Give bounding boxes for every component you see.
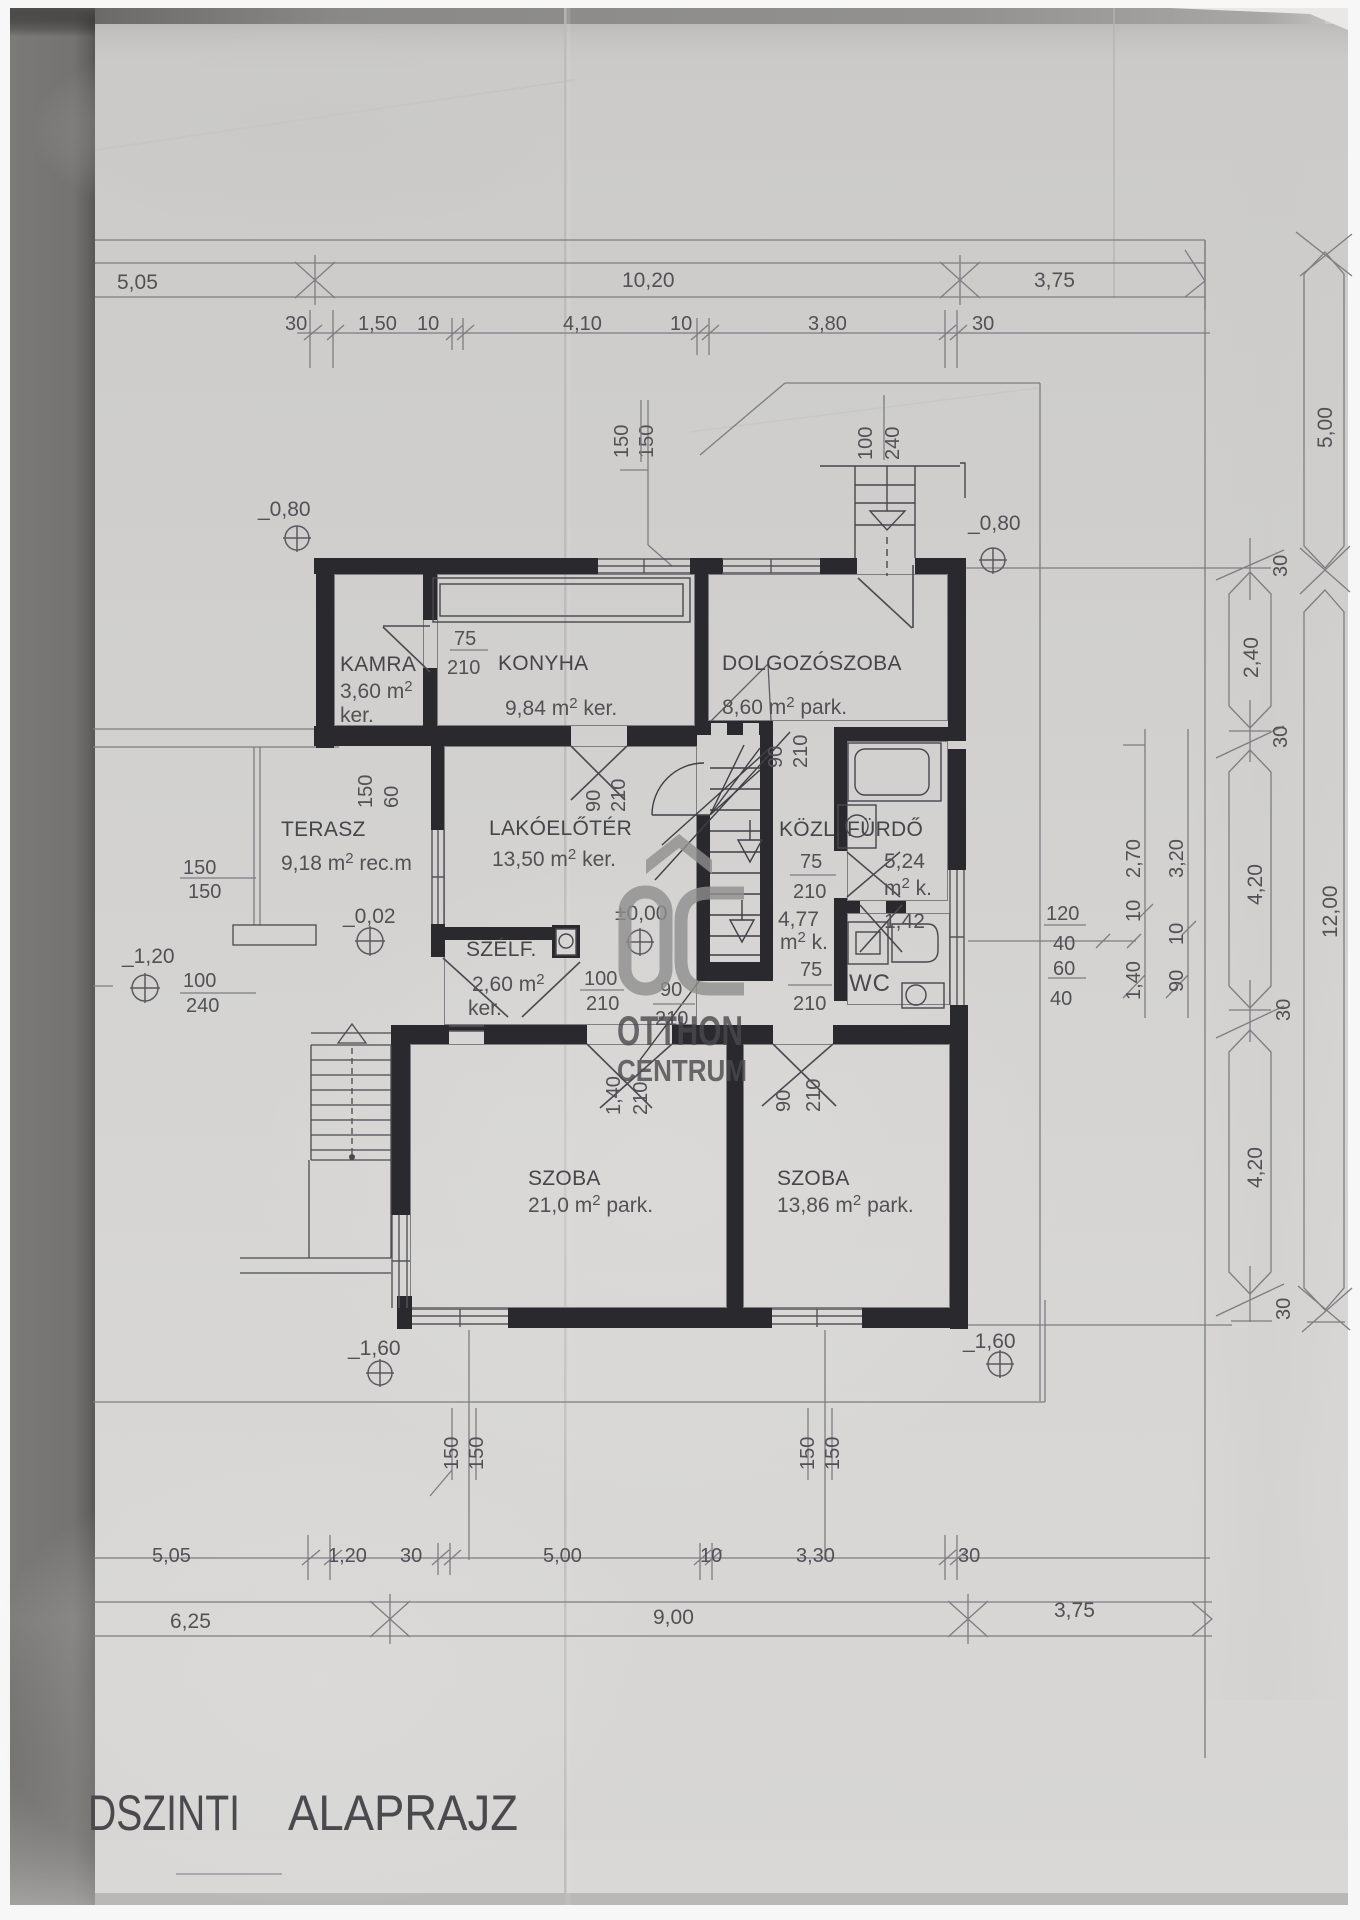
svg-text:30: 30 xyxy=(1270,555,1292,577)
svg-text:60: 60 xyxy=(1053,958,1075,980)
svg-text:30: 30 xyxy=(1273,1298,1295,1320)
svg-text:40: 40 xyxy=(1053,933,1075,955)
svg-text:13,50 m2 ker.: 13,50 m2 ker. xyxy=(492,846,616,871)
svg-text:75: 75 xyxy=(454,628,476,650)
svg-text:150: 150 xyxy=(441,1437,463,1470)
svg-text:KÖZL.: KÖZL. xyxy=(779,818,841,841)
svg-text:90: 90 xyxy=(583,790,605,812)
svg-text:210: 210 xyxy=(608,779,630,812)
svg-text:2,40: 2,40 xyxy=(1240,637,1263,678)
svg-text:150: 150 xyxy=(466,1437,488,1470)
svg-text:5,00: 5,00 xyxy=(543,1545,582,1567)
svg-text:10: 10 xyxy=(700,1545,722,1567)
svg-text:4,10: 4,10 xyxy=(563,313,602,335)
svg-text:9,00: 9,00 xyxy=(653,1606,694,1629)
svg-text:100: 100 xyxy=(584,968,617,990)
svg-text:5,24: 5,24 xyxy=(884,850,925,873)
svg-text:1,20: 1,20 xyxy=(328,1545,367,1567)
svg-text:SZOBA: SZOBA xyxy=(528,1167,601,1190)
svg-text:210: 210 xyxy=(447,657,480,679)
svg-text:WC: WC xyxy=(849,970,891,997)
svg-text:1,40: 1,40 xyxy=(1123,961,1145,1000)
svg-text:150: 150 xyxy=(797,1437,819,1470)
svg-text:150: 150 xyxy=(611,425,633,458)
svg-text:DSZINTI: DSZINTI xyxy=(88,1785,240,1841)
svg-text:5,00: 5,00 xyxy=(1314,407,1337,448)
svg-text:LAKÓELŐTÉR: LAKÓELŐTÉR xyxy=(489,817,632,840)
svg-text:210: 210 xyxy=(793,881,826,903)
svg-text:_0,80: _0,80 xyxy=(967,512,1021,535)
svg-text:75: 75 xyxy=(800,851,822,873)
svg-text:210: 210 xyxy=(586,993,619,1015)
svg-text:210: 210 xyxy=(803,1079,825,1112)
svg-text:100: 100 xyxy=(855,427,877,460)
svg-text:30: 30 xyxy=(972,313,994,335)
svg-text:30: 30 xyxy=(285,313,307,335)
svg-text:150: 150 xyxy=(183,857,216,879)
svg-text:TERASZ: TERASZ xyxy=(281,818,366,841)
svg-text:_1,60: _1,60 xyxy=(347,1337,401,1360)
svg-text:240: 240 xyxy=(882,427,904,460)
svg-text:210: 210 xyxy=(793,993,826,1015)
svg-text:75: 75 xyxy=(800,959,822,981)
svg-text:8,60 m2 park.: 8,60 m2 park. xyxy=(722,694,847,719)
svg-text:SZÉLF.: SZÉLF. xyxy=(466,938,537,961)
svg-text:OTTHON: OTTHON xyxy=(617,1007,743,1054)
svg-text:10: 10 xyxy=(1123,900,1145,922)
svg-text:30: 30 xyxy=(400,1545,422,1567)
svg-text:5,05: 5,05 xyxy=(152,1545,191,1567)
svg-text:_0,02: _0,02 xyxy=(342,905,396,928)
svg-text:210: 210 xyxy=(790,735,812,768)
svg-text:150: 150 xyxy=(355,775,377,808)
svg-text:12,00: 12,00 xyxy=(1319,885,1342,938)
svg-text:_0,80: _0,80 xyxy=(257,498,311,521)
svg-text:ker.: ker. xyxy=(340,704,374,727)
svg-text:150: 150 xyxy=(822,1437,844,1470)
svg-text:13,86 m2 park.: 13,86 m2 park. xyxy=(777,1192,914,1217)
svg-text:4,20: 4,20 xyxy=(1244,1147,1267,1188)
svg-text:1,50: 1,50 xyxy=(358,313,397,335)
svg-text:4,77: 4,77 xyxy=(778,908,819,931)
svg-text:90: 90 xyxy=(1166,970,1188,992)
svg-text:ALAPRAJZ: ALAPRAJZ xyxy=(288,1785,518,1841)
svg-text:2,60 m2: 2,60 m2 xyxy=(472,971,545,996)
svg-text:120: 120 xyxy=(1046,903,1079,925)
svg-text:150: 150 xyxy=(188,881,221,903)
svg-text:3,20: 3,20 xyxy=(1166,839,1188,878)
svg-text:10: 10 xyxy=(670,313,692,335)
svg-text:FÜRDŐ: FÜRDŐ xyxy=(847,818,923,841)
svg-text:150: 150 xyxy=(636,425,658,458)
svg-text:3,75: 3,75 xyxy=(1054,1599,1095,1622)
svg-text:3,30: 3,30 xyxy=(796,1545,835,1567)
svg-text:10: 10 xyxy=(1166,923,1188,945)
svg-text:90: 90 xyxy=(773,1090,795,1112)
svg-text:6,25: 6,25 xyxy=(170,1610,211,1633)
svg-text:21,0 m2 park.: 21,0 m2 park. xyxy=(528,1192,653,1217)
svg-text:_1,60: _1,60 xyxy=(962,1330,1016,1353)
svg-text:KAMRA: KAMRA xyxy=(340,653,416,676)
svg-text:10,20: 10,20 xyxy=(622,269,675,292)
svg-text:10: 10 xyxy=(417,313,439,335)
svg-text:30: 30 xyxy=(1270,726,1292,748)
svg-text:2,70: 2,70 xyxy=(1123,839,1145,878)
svg-text:60: 60 xyxy=(381,786,403,808)
svg-text:3,75: 3,75 xyxy=(1034,269,1075,292)
svg-text:CENTRUM: CENTRUM xyxy=(617,1053,747,1088)
svg-text:4,20: 4,20 xyxy=(1244,864,1267,905)
svg-text:3,60 m2: 3,60 m2 xyxy=(340,678,413,703)
svg-text:_1,20: _1,20 xyxy=(121,945,175,968)
svg-text:9,84 m2 ker.: 9,84 m2 ker. xyxy=(505,695,617,720)
svg-text:100: 100 xyxy=(183,970,216,992)
svg-text:SZOBA: SZOBA xyxy=(777,1167,850,1190)
svg-text:ker.: ker. xyxy=(468,997,502,1020)
svg-text:40: 40 xyxy=(1050,988,1072,1010)
svg-text:240: 240 xyxy=(186,995,219,1017)
svg-text:30: 30 xyxy=(958,1545,980,1567)
svg-text:30: 30 xyxy=(1273,999,1295,1021)
svg-text:90: 90 xyxy=(765,746,787,768)
svg-text:5,05: 5,05 xyxy=(117,271,158,294)
svg-text:1,42: 1,42 xyxy=(884,910,925,933)
svg-text:KONYHA: KONYHA xyxy=(498,652,589,675)
svg-text:DOLGOZÓSZOBA: DOLGOZÓSZOBA xyxy=(722,652,902,675)
svg-text:3,80: 3,80 xyxy=(808,313,847,335)
